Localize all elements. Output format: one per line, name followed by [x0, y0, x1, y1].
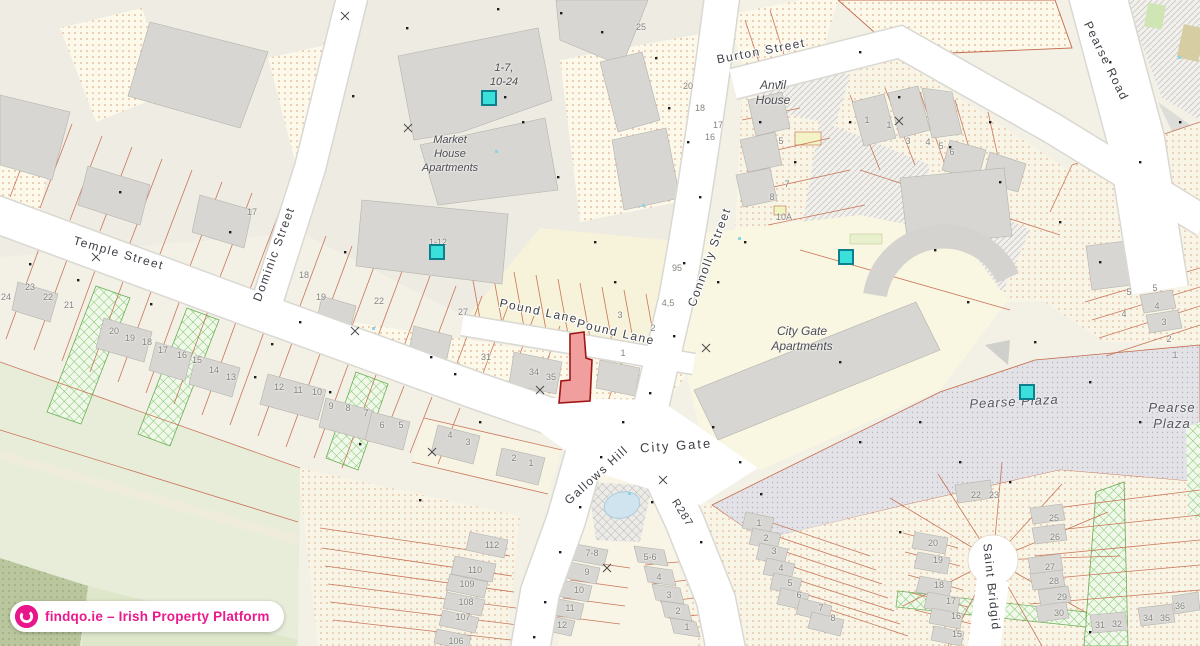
- parcel-number: 20: [928, 538, 938, 548]
- map-marker[interactable]: [838, 249, 854, 265]
- place-label-market-house-apartments: Market House Apartments: [400, 134, 500, 175]
- parcel-number: 3: [617, 310, 622, 320]
- parcel-number: 24: [1, 292, 11, 302]
- parcel-number: 18: [695, 103, 705, 113]
- parcel-number: 3: [465, 437, 470, 447]
- parcel-number: 32: [1112, 619, 1122, 629]
- parcel-number: 1: [886, 120, 891, 130]
- parcel-number: 5: [1126, 287, 1131, 297]
- parcel-number: 28: [1049, 576, 1059, 586]
- parcel-number: 112: [485, 540, 499, 550]
- parcel-number: 12: [274, 382, 284, 392]
- parcel-number: 30: [1054, 608, 1064, 618]
- parcel-number: 4: [656, 572, 661, 582]
- place-label-city-gate-apartments: City Gate Apartments: [742, 324, 862, 354]
- parcel-number: 23: [989, 490, 999, 500]
- parcel-number: 9: [584, 567, 589, 577]
- parcel-number: 12: [557, 620, 567, 630]
- map-marker[interactable]: [429, 244, 445, 260]
- parcel-number: 10: [574, 585, 584, 595]
- parcel-number: 5: [398, 420, 403, 430]
- parcel-number: 4: [447, 430, 452, 440]
- parcel-number: 7: [363, 408, 368, 418]
- parcel-number: 23: [25, 282, 35, 292]
- parcel-number: 3: [771, 546, 776, 556]
- parcel-number: 18: [299, 270, 309, 280]
- parcel-number: 2: [1166, 334, 1171, 344]
- parcel-number: 25: [1049, 513, 1059, 523]
- place-label-units-1-7-10-24: 1-7, 10-24: [474, 62, 534, 90]
- parcel-number: 5: [938, 141, 943, 151]
- parcel-number: 16: [951, 611, 961, 621]
- parcel-number: 10A: [776, 212, 792, 222]
- findqo-logo-icon: [15, 605, 38, 628]
- parcel-number: 31: [481, 352, 491, 362]
- parcel-number: 29: [1057, 592, 1067, 602]
- parcel-number: 4,5: [662, 298, 675, 308]
- parcel-number: 5: [778, 136, 783, 146]
- parcel-number: 8: [769, 192, 774, 202]
- parcel-number: 14: [209, 365, 219, 375]
- parcel-number: 1: [864, 115, 869, 125]
- parcel-number: 18: [934, 580, 944, 590]
- parcel-number: 17: [946, 596, 956, 606]
- watermark-badge: findqo.ie – Irish Property Platform: [10, 601, 284, 632]
- parcel-number: 106: [448, 636, 463, 646]
- parcel-number: 1: [620, 348, 625, 358]
- parcel-number: 4: [925, 137, 930, 147]
- parcel-number: 8: [830, 613, 835, 623]
- parcel-number: 16: [177, 350, 187, 360]
- parcel-number: 5: [1152, 283, 1157, 293]
- parcel-number: 19: [933, 555, 943, 565]
- parcel-number: 7: [784, 179, 789, 189]
- parcel-number: 1: [1172, 350, 1177, 360]
- parcel-number: 34: [1143, 613, 1153, 623]
- map-marker[interactable]: [481, 90, 497, 106]
- parcel-number: 6: [796, 590, 801, 600]
- parcel-number: 11: [293, 385, 302, 395]
- parcel-number: 4: [1154, 301, 1159, 311]
- parcel-number: 36: [1175, 601, 1185, 611]
- parcel-number: 16: [705, 132, 715, 142]
- parcel-number: 108: [458, 597, 473, 607]
- parcel-number: 95: [672, 263, 682, 273]
- parcel-number: 9: [328, 401, 333, 411]
- place-label-anvil-house: Anvil House: [733, 78, 813, 108]
- watermark-text: findqo.ie – Irish Property Platform: [45, 609, 270, 624]
- parcel-number: 17: [158, 345, 168, 355]
- parcel-number: 7: [818, 603, 823, 613]
- parcel-number: 22: [43, 292, 53, 302]
- parcel-number: 20: [109, 326, 119, 336]
- map-canvas[interactable]: Temple Street Dominic Street Pound Lane …: [0, 0, 1200, 646]
- parcel-number: 2: [511, 453, 516, 463]
- parcel-number: 1: [756, 518, 761, 528]
- parcel-number: 27: [458, 307, 468, 317]
- parcel-number: 17: [713, 120, 723, 130]
- place-label-pearse-plaza-2: Pearse Plaza: [1132, 400, 1200, 433]
- parcel-number: 6: [379, 420, 384, 430]
- parcel-number: 3: [666, 590, 671, 600]
- parcel-number: 25: [636, 22, 646, 32]
- parcel-number: 5: [787, 578, 792, 588]
- parcel-number: 5-6: [643, 552, 656, 562]
- parcel-number: 7-8: [585, 548, 598, 558]
- parcel-number: 1: [684, 622, 689, 632]
- parcel-number: 31: [1095, 620, 1105, 630]
- parcel-number: 11: [565, 603, 574, 613]
- parcel-number: 35: [546, 372, 556, 382]
- parcel-number: 15: [952, 629, 962, 639]
- parcel-number: 1: [528, 458, 533, 468]
- parcel-number: 26: [1050, 532, 1060, 542]
- parcel-number: 15: [192, 355, 202, 365]
- parcel-number: 18: [142, 337, 152, 347]
- parcel-number: 2: [650, 323, 655, 333]
- parcel-number: 17: [247, 207, 257, 217]
- parcel-number: 6: [949, 147, 954, 157]
- map-marker[interactable]: [1019, 384, 1035, 400]
- parcel-number: 2: [763, 533, 768, 543]
- parcel-number: 22: [971, 490, 981, 500]
- parcel-number: 10: [312, 387, 322, 397]
- parcel-number: 21: [64, 300, 74, 310]
- parcel-number: 107: [455, 612, 470, 622]
- parcel-number: 20: [683, 81, 693, 91]
- parcel-number: 3: [1161, 317, 1166, 327]
- parcel-number: 35: [1160, 613, 1170, 623]
- parcel-number: 109: [459, 579, 474, 589]
- parcel-number: 22: [374, 296, 384, 306]
- parcel-number: 19: [125, 333, 135, 343]
- parcel-number: 13: [226, 372, 236, 382]
- parcel-number: 4: [1121, 309, 1126, 319]
- parcel-number: 27: [1045, 562, 1055, 572]
- parcel-number: 2: [675, 606, 680, 616]
- parcel-number: 34: [529, 367, 539, 377]
- parcel-number: 8: [345, 403, 350, 413]
- parcel-number: 4: [778, 563, 783, 573]
- parcel-number: 3: [905, 136, 910, 146]
- parcel-number: 19: [316, 292, 326, 302]
- parcel-number: 110: [468, 565, 482, 575]
